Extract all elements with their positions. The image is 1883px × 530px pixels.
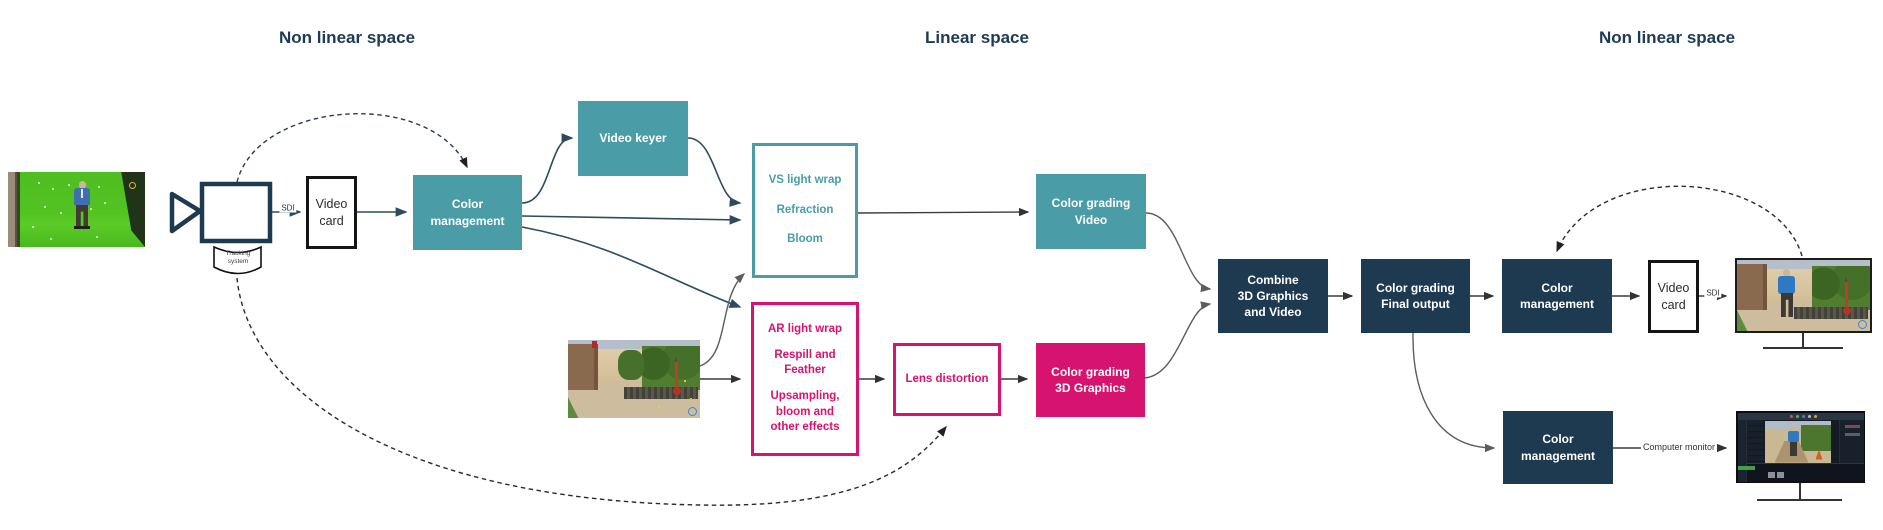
- street-flag: [592, 341, 597, 348]
- node-vs-light-wrap: VS light wrap Refraction Bloom: [752, 143, 858, 278]
- m2-timeline-clips: [1768, 472, 1775, 478]
- ar-line-3: Upsampling, bloom and other effects: [770, 389, 839, 436]
- editing-software-screen: [1738, 413, 1864, 482]
- section-header-linear: Linear space: [925, 28, 1029, 48]
- node-lens-distortion: Lens distortion: [893, 343, 1001, 416]
- m2-left-panel: [1747, 420, 1764, 464]
- sdi-label-out: SDI: [1704, 289, 1721, 298]
- presenter-feet: [74, 226, 90, 229]
- ar-line-2: Respill and Feather: [774, 348, 835, 379]
- m2-preview-legs: [1790, 442, 1797, 456]
- node-color-grading-video: Color grading Video: [1036, 174, 1146, 249]
- node-video-card-out: Video card: [1648, 260, 1699, 333]
- node-video-keyer: Video keyer: [578, 101, 688, 176]
- m2-menu-icons: [1790, 415, 1793, 418]
- street-gizmo: [688, 407, 697, 416]
- computer-monitor-image: [1736, 411, 1865, 483]
- sdi-label-in: SDI: [279, 204, 296, 213]
- node-color-management-out: Color management: [1502, 259, 1612, 333]
- video-monitor-screen: [1737, 260, 1870, 331]
- street-building-left: [568, 344, 598, 390]
- m2-preview-head: [1791, 426, 1796, 431]
- studio-dark-panel: [109, 172, 145, 247]
- street-dots: [684, 380, 686, 382]
- m1-gauge-ball: [1843, 307, 1851, 315]
- 3d-graphics-image: [568, 340, 700, 418]
- panel-logo: [129, 182, 136, 189]
- m1-gauge: [1845, 282, 1848, 310]
- m2-preview-cone: [1816, 450, 1823, 460]
- node-color-management-monitor: Color management: [1503, 411, 1613, 484]
- ar-line-1: AR light wrap: [768, 322, 842, 338]
- tracking-system-label: Tracking system: [213, 250, 263, 272]
- vs-line-3: Bloom: [787, 232, 823, 248]
- street-gauge: [675, 362, 678, 390]
- node-color-grading-3d: Color grading 3D Graphics: [1036, 343, 1145, 417]
- computer-monitor-label: Computer monitor: [1641, 442, 1717, 452]
- m1-building: [1737, 264, 1767, 310]
- m2-preview: [1765, 421, 1831, 463]
- m2-timeline: [1747, 463, 1864, 482]
- section-header-nonlinear-right: Non linear space: [1599, 28, 1735, 48]
- m1-gizmo: [1858, 320, 1867, 329]
- node-ar-light-wrap: AR light wrap Respill and Feather Upsamp…: [751, 302, 859, 456]
- monitor1-scene: [1737, 260, 1870, 331]
- presenter-legs: [76, 205, 88, 227]
- video-monitor-image: [1735, 258, 1872, 333]
- m1-presenter-shirt: [1778, 276, 1795, 294]
- studio-wall: [8, 172, 20, 247]
- m2-right-bars: [1845, 425, 1860, 428]
- vs-line-1: VS light wrap: [769, 173, 842, 189]
- m2-preview-shirt: [1788, 431, 1799, 442]
- section-header-nonlinear-left: Non linear space: [279, 28, 415, 48]
- street-gauge-ball: [673, 387, 681, 395]
- vs-line-2: Refraction: [777, 203, 834, 219]
- node-color-management-in: Color management: [413, 175, 522, 250]
- m2-preview-trees: [1801, 425, 1831, 451]
- pipeline-diagram: Non linear space Linear space Non linear…: [0, 0, 1883, 530]
- camera-icon: [172, 184, 270, 241]
- node-combine: Combine 3D Graphics and Video: [1218, 259, 1328, 333]
- m2-tool-strip: [1738, 420, 1747, 482]
- node-video-card-in: Video card: [306, 176, 357, 249]
- m2-menubar: [1738, 413, 1864, 420]
- node-color-grading-final: Color grading Final output: [1361, 259, 1470, 333]
- presenter-lanyard: [81, 189, 83, 198]
- tracking-markers: [38, 182, 40, 184]
- m2-timeline-green-clip: [1738, 466, 1755, 470]
- greenscreen-studio-image: [8, 172, 145, 247]
